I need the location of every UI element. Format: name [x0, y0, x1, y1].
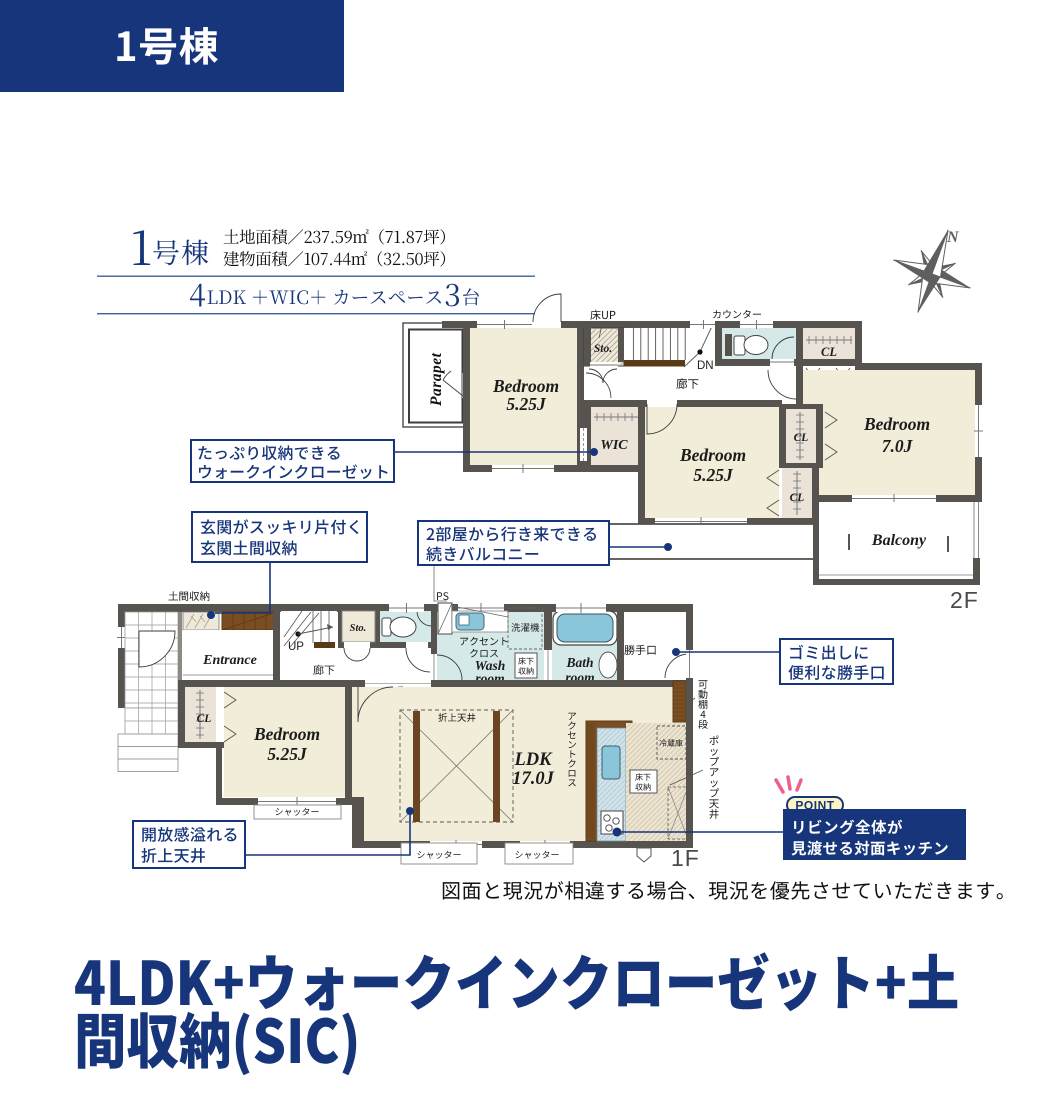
svg-text:2F: 2F: [950, 587, 979, 613]
svg-text:CL: CL: [821, 345, 837, 359]
svg-text:Parapet: Parapet: [428, 352, 445, 406]
svg-text:DN: DN: [697, 360, 714, 372]
svg-text:N: N: [946, 229, 960, 246]
svg-text:Bedroom: Bedroom: [492, 376, 559, 396]
svg-text:Bedroom: Bedroom: [253, 724, 320, 744]
svg-text:CL: CL: [794, 432, 809, 444]
svg-text:LDK: LDK: [514, 750, 554, 770]
svg-text:17.0J: 17.0J: [512, 769, 554, 789]
svg-text:Bath: Bath: [565, 655, 593, 670]
svg-text:5.25J: 5.25J: [267, 744, 308, 764]
svg-text:Sto.: Sto.: [594, 343, 612, 355]
svg-text:WIC: WIC: [600, 438, 628, 453]
svg-text:UP: UP: [288, 641, 304, 653]
svg-text:7.0J: 7.0J: [882, 436, 914, 456]
svg-text:Entrance: Entrance: [202, 653, 257, 668]
svg-text:5.25J: 5.25J: [506, 394, 547, 414]
svg-text:CL: CL: [197, 713, 212, 725]
svg-text:CL: CL: [790, 492, 805, 504]
svg-text:Sto.: Sto.: [350, 623, 367, 634]
svg-text:5.25J: 5.25J: [693, 465, 734, 485]
svg-text:Bedroom: Bedroom: [679, 445, 746, 465]
svg-text:Bedroom: Bedroom: [863, 414, 930, 434]
svg-text:Balcony: Balcony: [871, 532, 927, 549]
svg-text:1F: 1F: [671, 845, 700, 871]
